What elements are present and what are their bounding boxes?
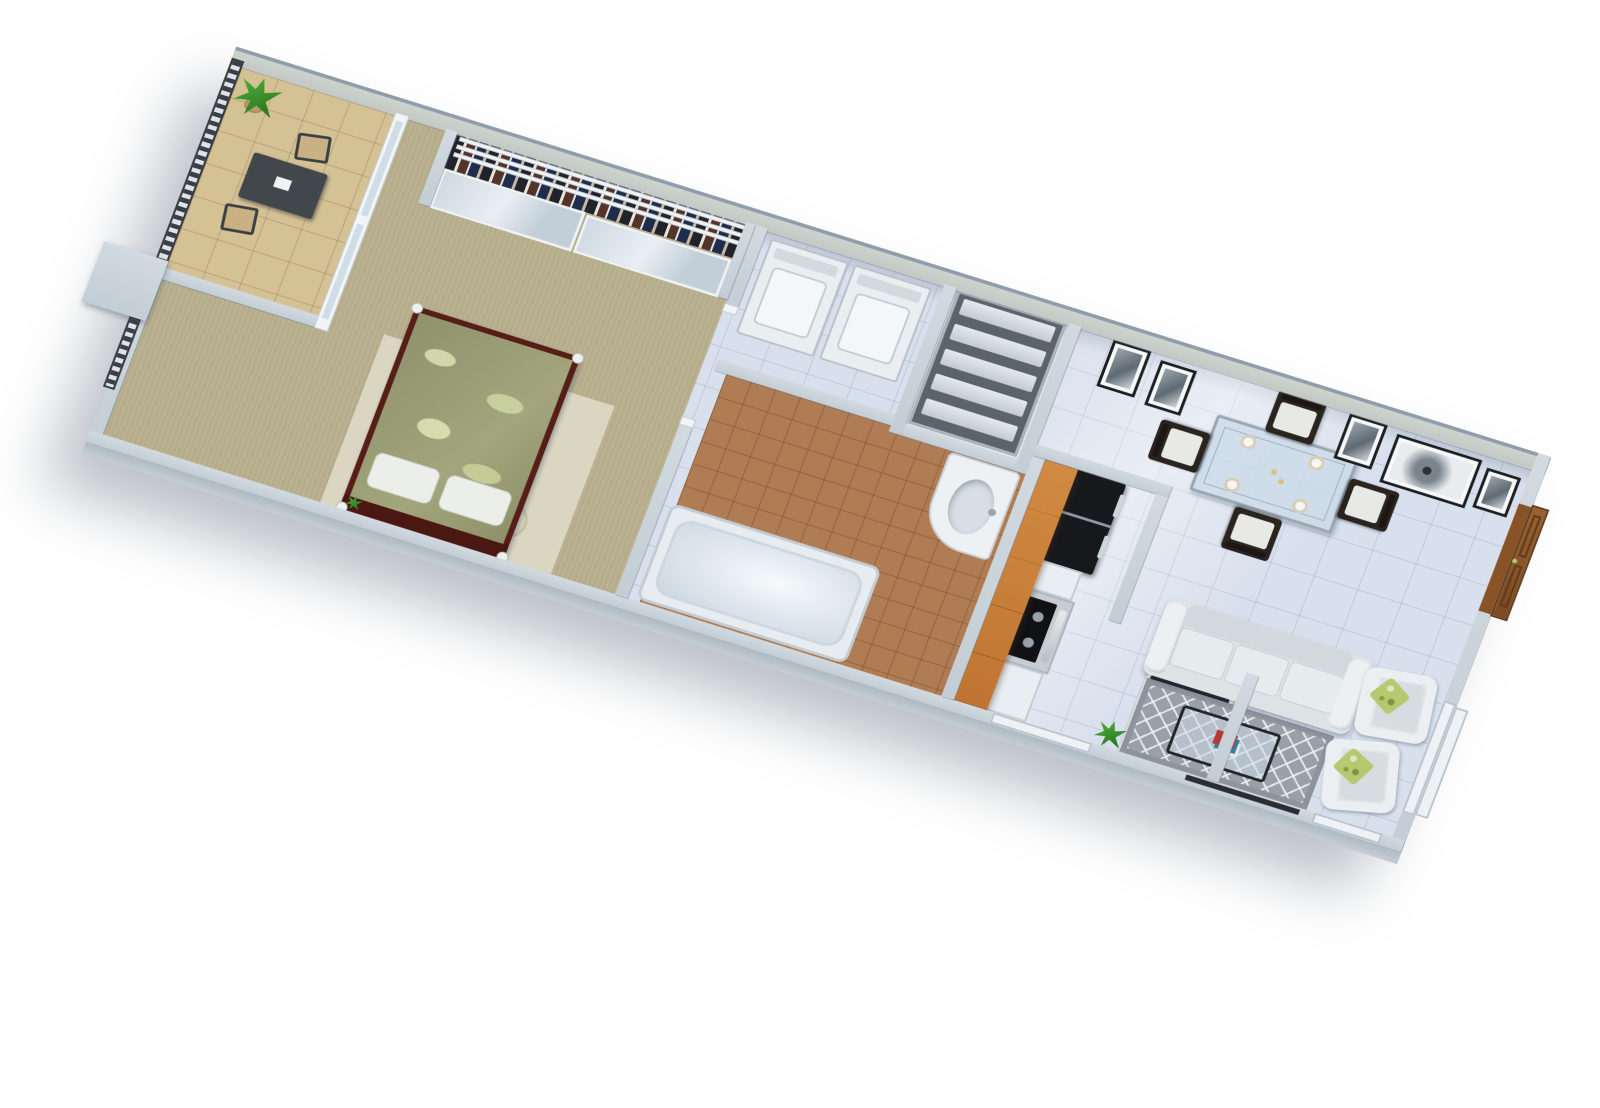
armchair [1352, 665, 1439, 745]
door-handle-icon [1511, 558, 1517, 564]
balcony-chair [220, 203, 259, 236]
vanity-basin [940, 474, 1002, 540]
armchair [1320, 738, 1401, 814]
washer-lid [752, 266, 828, 340]
balcony-chair [294, 132, 332, 164]
desk-paper [273, 176, 292, 191]
dryer-lid [835, 292, 911, 366]
apartment-floorplan [82, 50, 1549, 863]
floorplan-stage [0, 0, 1600, 1108]
